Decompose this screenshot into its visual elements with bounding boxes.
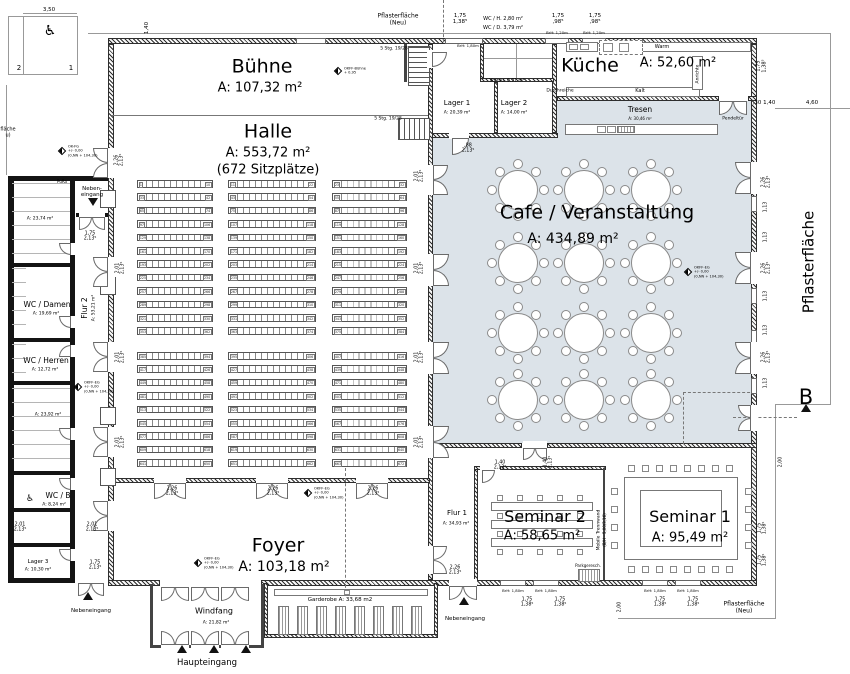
seat-number: 86 [308, 208, 315, 214]
label-mobile-trennwand: Mobile Trennwand [596, 510, 601, 551]
chair [579, 159, 589, 169]
seat-row-section: 641650 [137, 459, 213, 467]
seat-row-section: 491502 [228, 392, 316, 400]
annotation: 1,75 1,38⁵ [453, 13, 467, 25]
annotation: BrH: 1,20m [546, 31, 568, 35]
seat-number: 503 [334, 394, 343, 400]
door-leaf [93, 357, 108, 372]
chair [497, 549, 503, 555]
seat-number: 87 [334, 208, 341, 214]
seat-dividers [341, 447, 398, 453]
kitchen-kalt-counter [566, 87, 700, 97]
seat-dividers [341, 181, 398, 187]
seat-row-section: 471480 [332, 379, 407, 387]
annotation: 1,13 [763, 378, 768, 389]
door-leaf [59, 316, 71, 328]
seat-number: 426 [203, 367, 212, 373]
round-table [564, 313, 604, 353]
door-leaf [221, 587, 235, 601]
door-leaf [59, 549, 71, 561]
chair [745, 524, 752, 531]
chair [557, 549, 563, 555]
chair [628, 465, 635, 472]
seat-row-section: 523534 [228, 406, 316, 414]
seat-dividers [341, 420, 398, 426]
annotation: 2,01 2,13⁵ [116, 436, 127, 449]
annotation: 2,01 2,13⁵ [116, 262, 127, 275]
seat-number: 416 [397, 354, 406, 360]
chair [561, 346, 571, 356]
annotation: 2,01 2,13⁵ [415, 436, 426, 449]
chair [745, 506, 752, 513]
seat-number: 288 [397, 289, 406, 295]
site-line [484, 58, 552, 59]
entrance-arrow [801, 404, 811, 412]
door-opening [750, 162, 758, 194]
seat-number: 631 [334, 447, 343, 453]
wall-solid [8, 338, 75, 342]
annotation: 1,75 1,38⁵ [554, 598, 567, 609]
seat-dividers [146, 393, 204, 399]
label-nebeneingang-s: Nebeneingang [445, 616, 485, 622]
chair [642, 566, 649, 573]
seat-row-section: 97106 [137, 220, 213, 228]
chair [513, 232, 523, 242]
seat-number: 641 [139, 461, 148, 467]
seat-number: 449 [139, 380, 148, 386]
chair [646, 421, 656, 431]
seat-number: 651 [230, 461, 239, 467]
annotation: BrH: 1,80m [677, 589, 699, 593]
wall-hatched [480, 44, 484, 80]
seat-number: 544 [397, 407, 406, 413]
seat-number: 11 [230, 182, 237, 188]
seat-dividers [341, 235, 398, 241]
annotation: A: 53,21 m² [91, 295, 96, 321]
door-opening [750, 342, 758, 374]
tresen-counter [565, 124, 718, 135]
seat-row-section: 1122 [228, 180, 316, 188]
annotation: 2,01 2,13⁵ [14, 523, 27, 534]
chair [487, 258, 497, 268]
annotation: A: 30,46 m² [628, 117, 652, 121]
room-label-windfang: Windfang [195, 608, 233, 617]
coat-rack [297, 606, 308, 635]
seat-dividers [341, 315, 398, 321]
chair [646, 354, 656, 364]
seat-row-section: 385394 [137, 352, 213, 360]
seat-row-section: 247256 [332, 274, 407, 282]
seat-number: 375 [334, 329, 343, 335]
seat-number: 33 [139, 195, 146, 201]
seat-number: 427 [230, 367, 239, 373]
chair [698, 465, 705, 472]
door-leaf [93, 272, 108, 287]
furniture [603, 43, 613, 52]
door-leaf [93, 442, 108, 457]
seat-number: 609 [139, 447, 148, 453]
seat-row-section: 203214 [228, 260, 316, 268]
annotation: 2,01 2,13⁵ [415, 170, 426, 183]
chair [605, 185, 615, 195]
chair [670, 566, 677, 573]
seat-number: 128 [397, 222, 406, 228]
seat-number: 310 [306, 302, 315, 308]
door-opening [750, 252, 758, 284]
label-pflasterflaeche-top: Pflasterfläche (Neu) [378, 13, 419, 26]
seat-number: 64 [399, 195, 406, 201]
garderobe-rail [274, 589, 428, 596]
seat-number: 534 [306, 407, 315, 413]
seat-dividers [146, 315, 204, 321]
seat-dividers [146, 447, 204, 453]
seat-number: 54 [308, 195, 315, 201]
seat-number: 23 [334, 182, 341, 188]
chair [531, 167, 541, 177]
seat-number: 202 [203, 262, 212, 268]
annotation: 1,75 1,38⁵ [687, 598, 700, 609]
seat-dividers [237, 380, 307, 386]
seat-number: 352 [397, 316, 406, 322]
annotation: Kalt [635, 89, 645, 95]
annotation: 2,01 2,13⁵ [415, 262, 426, 275]
round-table [631, 380, 671, 420]
wall-hatched [494, 82, 498, 133]
annotation: WC / D. 3,79 m² [483, 26, 523, 32]
chair [513, 159, 523, 169]
seat-number: 470 [306, 380, 315, 386]
seat-number: 321 [139, 316, 148, 322]
room-label-buehne: Bühne [232, 56, 293, 77]
seat-row-section: 3342 [137, 193, 213, 201]
chair [656, 465, 663, 472]
seat-number: 448 [397, 367, 406, 373]
seat-number: 257 [139, 289, 148, 295]
seat-number: 97 [139, 222, 146, 228]
entrance-arrow [241, 645, 251, 653]
chair [672, 328, 682, 338]
seat-number: 491 [230, 394, 239, 400]
seat-number: 267 [230, 289, 239, 295]
chair [487, 328, 497, 338]
entrance-arrow [83, 592, 93, 600]
door-leaf [205, 631, 219, 645]
annotation: 2,01 2,13⁵ [86, 523, 99, 534]
seat-number: 587 [230, 434, 239, 440]
annotation: 1,40 [144, 22, 150, 34]
wall-solid [8, 578, 75, 583]
seat-number: 74 [205, 208, 212, 214]
seat-row-section: 439448 [332, 365, 407, 373]
seat-number: 235 [230, 275, 239, 281]
room-label-garderobe: Garderobe A: 33,68 m2 [308, 597, 372, 603]
chair [553, 395, 563, 405]
round-table [564, 380, 604, 420]
chair [531, 310, 541, 320]
seat-number: 225 [139, 275, 148, 281]
coat-rack [392, 606, 403, 635]
annotation: 1,40 2,13⁵ [494, 461, 507, 472]
seat-row-section: 449458 [137, 379, 213, 387]
chair [684, 465, 691, 472]
room-label-halle: Halle [244, 121, 292, 142]
annotation: A: 10,30 m² [25, 567, 51, 572]
seat-dividers [237, 248, 307, 254]
label-haupteingang: Haupteingang [177, 659, 237, 669]
coat-rack [316, 606, 327, 635]
seat-dividers [341, 261, 398, 267]
window-symbol [500, 580, 526, 586]
seat-dividers [341, 288, 398, 294]
stairs [398, 118, 430, 140]
seat-dividers [237, 235, 307, 241]
seat-number: 384 [397, 329, 406, 335]
chair [539, 328, 549, 338]
seat-row-section: 631640 [332, 446, 407, 454]
seat-dividers [237, 302, 307, 308]
seat-number: 363 [230, 329, 239, 335]
seat-row-section: 7586 [228, 207, 316, 215]
seat-row-section: 2332 [332, 180, 407, 188]
room-label-foyer: Foyer [252, 535, 305, 556]
chair [495, 276, 505, 286]
wheelchair-icon: ♿ [26, 494, 34, 504]
chair [605, 328, 615, 338]
chair [605, 258, 615, 268]
seat-number: 438 [306, 367, 315, 373]
coat-rack [335, 606, 346, 635]
wheelchair-icon: ♿ [44, 24, 57, 40]
chair [664, 310, 674, 320]
seat-number: 170 [203, 249, 212, 255]
door-leaf [235, 587, 249, 601]
wall-solid [8, 543, 75, 547]
floor-plan: 1101122233233424354556465747586879697106… [0, 0, 850, 674]
seat-number: 406 [306, 354, 315, 360]
seat-row-section: 299310 [228, 301, 316, 309]
seat-number: 192 [397, 249, 406, 255]
label-tresen: Tresen [628, 106, 652, 114]
annotation: 1,13 [763, 325, 768, 336]
seat-number: 554 [203, 421, 212, 427]
chair [577, 549, 583, 555]
chair [646, 232, 656, 242]
seat-row-section: 107118 [228, 220, 316, 228]
seat-dividers [341, 407, 398, 413]
chair [656, 566, 663, 573]
seat-row-section: 183192 [332, 247, 407, 255]
annotation: Parkgeresch. [575, 564, 601, 568]
seat-number: 118 [306, 222, 315, 228]
site-line [23, 16, 24, 75]
annotation: 1,75 ,98⁵ [589, 13, 601, 25]
seat-number: 331 [230, 316, 239, 322]
seat-number: 203 [230, 262, 239, 268]
door-opening [107, 501, 115, 531]
annotation: 2,26 2,13⁵ [166, 487, 179, 498]
seat-number: 672 [397, 461, 406, 467]
annotation: ,30 1,40 [753, 100, 776, 106]
chair [497, 531, 503, 537]
seat-dividers [237, 194, 307, 200]
door-leaf [191, 631, 205, 645]
seat-number: 342 [306, 316, 315, 322]
chair [684, 566, 691, 573]
seat-dividers [146, 288, 204, 294]
chair [646, 159, 656, 169]
window-symbol [533, 580, 559, 586]
seat-number: 545 [139, 421, 148, 427]
chair [712, 566, 719, 573]
door-leaf [432, 52, 447, 67]
furniture [617, 126, 635, 133]
chair [513, 421, 523, 431]
door-leaf [93, 342, 108, 357]
furniture [344, 590, 350, 595]
window-symbol [296, 38, 326, 44]
seat-number: 55 [334, 195, 341, 201]
seat-number: 224 [397, 262, 406, 268]
annotation: 2,26 2,13⁵ [762, 176, 773, 189]
level-marker-text: OKFF-Bühne + 0,95 [344, 67, 366, 76]
seat-number: 139 [230, 235, 239, 241]
room-label-wc-herren: WC / Herren [23, 357, 68, 365]
seat-row-section: 4354 [228, 193, 316, 201]
annotation: 2,01 2,13⁵ [116, 351, 127, 364]
seat-dividers [237, 460, 307, 466]
seat-dividers [237, 328, 307, 334]
wall-hatched [434, 583, 438, 638]
chair [539, 185, 549, 195]
seat-row-section: 171182 [228, 247, 316, 255]
seat-dividers [237, 221, 307, 227]
seat-dividers [237, 261, 307, 267]
seat-dividers [146, 353, 204, 359]
chair [745, 488, 752, 495]
chair [642, 465, 649, 472]
door-leaf [523, 448, 535, 460]
window-symbol [642, 580, 668, 586]
annotation: A: 8,24 m² [42, 502, 66, 507]
chair [611, 506, 618, 513]
wall-pilaster [100, 468, 116, 486]
door-leaf [175, 631, 189, 645]
chair [579, 369, 589, 379]
seat-row-section: 599608 [332, 432, 407, 440]
seat-dividers [146, 181, 204, 187]
seat-dividers [341, 275, 398, 281]
section-line [345, 468, 347, 593]
chair [745, 542, 752, 549]
room-area-seminar2: A: 58,65 m² [504, 530, 580, 545]
annotation: 1,75 ,98⁵ [552, 13, 564, 25]
door-leaf [205, 587, 219, 601]
chair [487, 395, 497, 405]
chair [611, 524, 618, 531]
seat-dividers [146, 275, 204, 281]
seat-number: 471 [334, 380, 343, 386]
seat-number: 362 [203, 329, 212, 335]
wall-hatched [264, 583, 268, 638]
round-table [564, 243, 604, 283]
seat-number: 1 [139, 182, 144, 188]
seat-row-section: 257266 [137, 287, 213, 295]
seat-number: 407 [334, 354, 343, 360]
annotation: 5 Stg. 19/28 [374, 116, 402, 121]
wall-hatched [547, 443, 757, 448]
label-nebeneingang-sw: Nebeneingang [71, 608, 111, 614]
seat-dividers [237, 181, 307, 187]
annotation: 1,75 1,38⁵ [521, 598, 534, 609]
annotation: 1,75 2,13⁵ [89, 561, 102, 572]
chair [531, 377, 541, 387]
seat-number: 193 [139, 262, 148, 268]
seat-row-section: 331342 [228, 314, 316, 322]
seat-number: 107 [230, 222, 239, 228]
chair [561, 413, 571, 423]
annotation: BrH: 1,80m [502, 589, 524, 593]
door-opening [107, 257, 115, 287]
level-marker-text: OKFF-EG +/- 0,00 (0,NN + 104,30) [84, 380, 113, 393]
furniture [580, 44, 589, 50]
seat-number: 151 [334, 235, 343, 241]
seat-number: 353 [139, 329, 148, 335]
seat-row-section: 279288 [332, 287, 407, 295]
chair [726, 566, 733, 573]
site-line [516, 44, 517, 78]
site-line [88, 33, 831, 34]
seat-dividers [341, 393, 398, 399]
seat-number: 289 [139, 302, 148, 308]
door-opening [107, 427, 115, 457]
seat-dividers [146, 407, 204, 413]
door-leaf [92, 217, 105, 230]
annotation: 1,13 [763, 291, 768, 302]
seat-row-section: 235246 [228, 274, 316, 282]
room-label-cafe: Cafe / Veranstaltung [500, 202, 694, 223]
room-area-cafe: A: 434,89 m² [527, 232, 618, 248]
seat-dividers [341, 460, 398, 466]
seat-number: 513 [139, 407, 148, 413]
chair [620, 328, 630, 338]
site-line [8, 16, 78, 17]
annotation: 1,13 [763, 232, 768, 243]
level-marker-text: OKFF-EG +/- 0,00 (0,NN + 104,30) [204, 556, 233, 569]
chair [620, 185, 630, 195]
annotation: 2,00 [617, 602, 622, 613]
furniture [607, 126, 616, 133]
window-symbol [751, 196, 757, 212]
chair [664, 377, 674, 387]
chair [628, 276, 638, 286]
seat-number: 266 [203, 289, 212, 295]
room-label-seminar2: Seminar 2 [504, 508, 586, 526]
wall-solid [8, 381, 75, 385]
chair [672, 395, 682, 405]
chair [513, 354, 523, 364]
section-line [443, 0, 445, 42]
seat-dividers [341, 302, 398, 308]
room-area-kueche: A: 52,60 m² [640, 57, 716, 72]
door-leaf [433, 546, 447, 560]
chair [664, 240, 674, 250]
seat-row-section: 151160 [332, 234, 407, 242]
seat-dividers [341, 433, 398, 439]
chair [513, 284, 523, 294]
seat-row-section: 215224 [332, 260, 407, 268]
seat-dividers [341, 366, 398, 372]
seat-row-section: 535544 [332, 406, 407, 414]
